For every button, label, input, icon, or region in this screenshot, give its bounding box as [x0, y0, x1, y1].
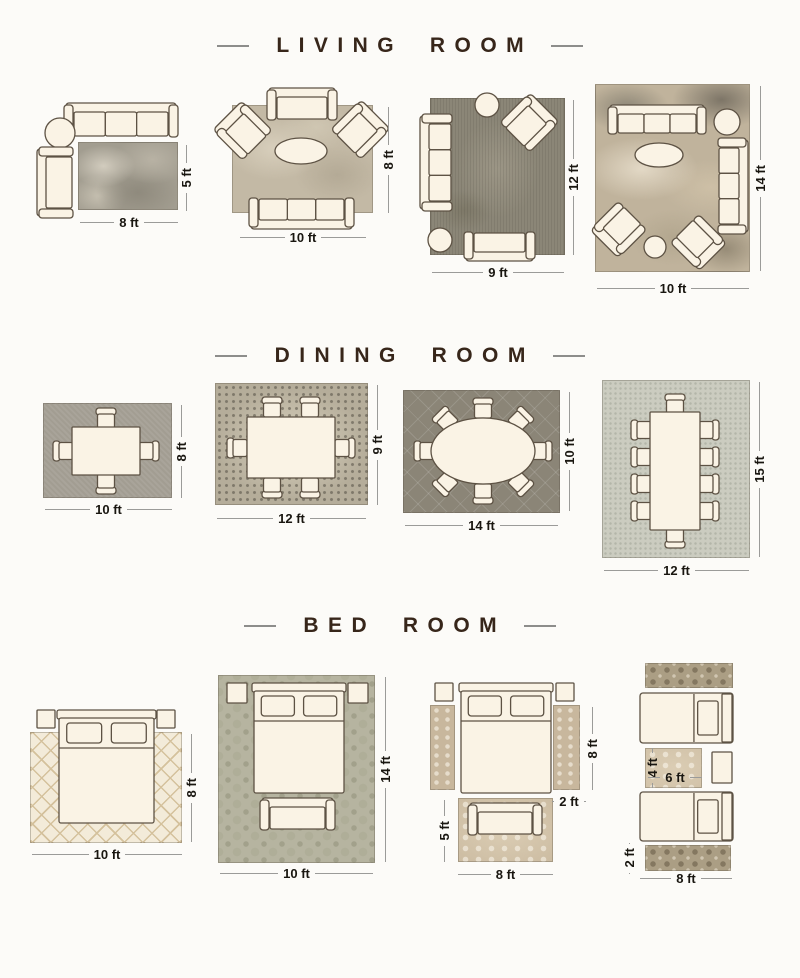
dimension-line [315, 873, 373, 874]
dimension-8-ft: 8 ft [173, 405, 189, 498]
dining-chair [631, 474, 651, 494]
dining-chair [631, 447, 651, 467]
sofa-3seat [718, 138, 748, 234]
dimension-14-ft: 14 ft [377, 677, 393, 862]
foot-bench [260, 798, 335, 830]
title-dash [217, 45, 249, 47]
dimension-line [310, 518, 366, 519]
dimension-line [45, 509, 90, 510]
dimension-label: 8 ft [114, 215, 144, 230]
dimension-line [321, 237, 366, 238]
section-title-bed-room: BED ROOM [0, 614, 800, 638]
title-dash [553, 355, 585, 357]
dimension-label: 10 ft [90, 502, 127, 517]
dimension-line [569, 392, 570, 433]
dimension-10-ft: 10 ft [45, 501, 172, 517]
armchair [213, 101, 272, 160]
dining-table [247, 417, 335, 478]
dining-chair [665, 528, 685, 548]
title-dash [524, 625, 556, 627]
nightstand [348, 683, 368, 703]
dimension-label: 10 ft [89, 847, 126, 862]
dining-chair [665, 394, 685, 414]
dimension-line [573, 196, 574, 255]
dimension-line [584, 801, 586, 802]
dimension-line [573, 100, 574, 159]
nightstand [712, 752, 732, 783]
dining-chair [96, 408, 116, 428]
dimension-line [127, 509, 172, 510]
dimension-label: 12 ft [658, 563, 695, 578]
nightstand [157, 710, 175, 728]
dimension-label: 10 ft [285, 230, 322, 245]
dining-chair [699, 501, 719, 521]
dimension-line [569, 470, 570, 511]
dimension-10-ft: 10 ft [32, 846, 182, 862]
dimension-label: 8 ft [491, 867, 521, 882]
dimension-line [405, 525, 463, 526]
dimension-line [377, 385, 378, 430]
oval-dining-table [431, 418, 535, 484]
dimension-line [759, 488, 760, 557]
dimension-line [32, 854, 89, 855]
dining-chair [631, 420, 651, 440]
foot-bench [468, 803, 542, 835]
dimension-label: 8 ft [585, 734, 600, 764]
loveseat [267, 88, 337, 120]
armchair-chaise [37, 147, 73, 218]
queen-bed [459, 683, 553, 793]
dining-chair [631, 501, 651, 521]
dimension-label: 14 ft [753, 160, 768, 197]
dimension-line [690, 777, 702, 778]
dimension-line [186, 193, 187, 211]
dimension-line [604, 570, 658, 571]
dimension-line [144, 222, 178, 223]
round-side-table [45, 118, 75, 148]
dimension-label: 8 ft [671, 871, 701, 886]
dimension-8-ft: 8 ft [584, 707, 600, 790]
dimension-5-ft: 5 ft [178, 145, 194, 211]
dimension-line [444, 800, 445, 816]
dining-chair [473, 484, 493, 504]
sofa-3seat [249, 198, 354, 229]
dimension-line [385, 677, 386, 751]
title-dash [244, 625, 276, 627]
dimension-9-ft: 9 ft [369, 385, 385, 505]
dimension-10-ft: 10 ft [597, 280, 749, 296]
dimension-12-ft: 12 ft [217, 510, 366, 526]
dimension-label: 12 ft [566, 159, 581, 196]
dining-chair [473, 398, 493, 418]
dimension-label: 8 ft [184, 773, 199, 803]
dimension-line [125, 854, 182, 855]
dimension-label: 10 ft [562, 433, 577, 470]
dining-chair [139, 441, 159, 461]
dining-chair [699, 420, 719, 440]
dimension-label: 14 ft [463, 518, 500, 533]
dimension-line [186, 145, 187, 163]
furniture-layer [0, 0, 800, 978]
dimension-label: 2 ft [554, 794, 584, 809]
dimension-line [191, 734, 192, 773]
dining-chair [699, 447, 719, 467]
dimension-line [640, 878, 671, 879]
dimension-label: 8 ft [174, 437, 189, 467]
dimension-line [80, 222, 114, 223]
dimension-8-ft: 8 ft [80, 214, 178, 230]
dimension-line [513, 272, 564, 273]
dining-chair [53, 441, 73, 461]
dimension-10-ft: 10 ft [220, 865, 373, 881]
sofa-3seat [64, 103, 178, 137]
twin-bed [640, 792, 733, 841]
armchair [500, 93, 559, 152]
dimension-6-ft: 6 ft [648, 769, 702, 785]
dimension-8-ft: 8 ft [183, 734, 199, 842]
dimension-8-ft: 8 ft [458, 866, 553, 882]
dimension-line [377, 460, 378, 505]
dimension-label: 12 ft [273, 511, 310, 526]
dimension-8-ft: 8 ft [380, 107, 396, 213]
nightstand [435, 683, 453, 701]
dimension-line [648, 777, 660, 778]
dimension-line [388, 107, 389, 145]
dimension-line [759, 382, 760, 451]
dimension-line [691, 288, 749, 289]
dimension-line [181, 405, 182, 437]
section-title-living-room: LIVING ROOM [0, 34, 800, 58]
loveseat [464, 232, 535, 261]
dimension-line [432, 272, 483, 273]
dimension-label: 10 ft [278, 866, 315, 881]
dining-chair [335, 438, 355, 458]
dimension-line [217, 518, 273, 519]
oval-coffee-table [275, 138, 327, 164]
dimension-2-ft: 2 ft [552, 793, 586, 809]
sofa-3seat [608, 105, 706, 134]
dimension-10-ft: 10 ft [240, 229, 366, 245]
dimension-line [695, 570, 749, 571]
section-title-dining-room: DINING ROOM [0, 344, 800, 368]
dimension-label: 5 ft [179, 163, 194, 193]
dimension-label: 5 ft [437, 816, 452, 846]
title-dash [215, 355, 247, 357]
dimension-line [458, 874, 491, 875]
title-dash [551, 45, 583, 47]
nightstand [556, 683, 574, 701]
dining-chair [96, 474, 116, 494]
dimension-label: 2 ft [622, 843, 637, 873]
dimension-label: 15 ft [752, 451, 767, 488]
dimension-line [520, 874, 553, 875]
dimension-label: 6 ft [660, 770, 690, 785]
dining-chair [300, 478, 320, 498]
dimension-line [181, 466, 182, 498]
dimension-line [701, 878, 732, 879]
dimension-label: 8 ft [381, 145, 396, 175]
dimension-5-ft: 5 ft [436, 800, 452, 862]
dimension-line [385, 788, 386, 862]
dimension-line [220, 873, 278, 874]
queen-bed [252, 683, 346, 793]
nightstand [37, 710, 55, 728]
dining-chair [227, 438, 247, 458]
dimension-line [444, 846, 445, 862]
living-room-title: LIVING ROOM [267, 34, 533, 58]
round-ottoman [428, 228, 452, 252]
dimension-line [760, 86, 761, 160]
armchair [590, 201, 647, 258]
bed-room-title: BED ROOM [294, 614, 506, 638]
dimension-label: 9 ft [370, 430, 385, 460]
dimension-12-ft: 12 ft [604, 562, 749, 578]
dining-chair [262, 397, 282, 417]
queen-bed [57, 710, 156, 823]
dimension-line [760, 197, 761, 271]
twin-bed [640, 693, 733, 743]
dimension-2-ft: 2 ft [621, 843, 637, 873]
dining-table [72, 427, 140, 475]
dining-chair [262, 478, 282, 498]
nightstand [227, 683, 247, 703]
dimension-line [240, 237, 285, 238]
sofa-3seat [420, 114, 452, 211]
dimension-10-ft: 10 ft [561, 392, 577, 511]
dining-chair [699, 474, 719, 494]
dining-chair [300, 397, 320, 417]
dimension-line [592, 763, 593, 790]
round-side-table [714, 109, 740, 135]
dimension-15-ft: 15 ft [751, 382, 767, 557]
rug-size-guide-canvas: LIVING ROOM DINING ROOM BED ROOM 8 ft5 f… [0, 0, 800, 978]
dimension-line [597, 288, 655, 289]
dimension-9-ft: 9 ft [432, 264, 564, 280]
dimension-14-ft: 14 ft [752, 86, 768, 271]
dimension-label: 14 ft [378, 751, 393, 788]
round-ottoman [644, 236, 666, 258]
dimension-line [388, 175, 389, 213]
dining-table [650, 412, 700, 530]
dimension-14-ft: 14 ft [405, 517, 558, 533]
dimension-line [592, 707, 593, 734]
dimension-line [191, 803, 192, 842]
dimension-label: 9 ft [483, 265, 513, 280]
dimension-12-ft: 12 ft [565, 100, 581, 255]
dining-room-title: DINING ROOM [265, 344, 535, 368]
dimension-label: 10 ft [655, 281, 692, 296]
dimension-8-ft: 8 ft [640, 870, 732, 886]
oval-coffee-table [635, 143, 683, 167]
dimension-line [500, 525, 558, 526]
round-side-table [475, 93, 499, 117]
